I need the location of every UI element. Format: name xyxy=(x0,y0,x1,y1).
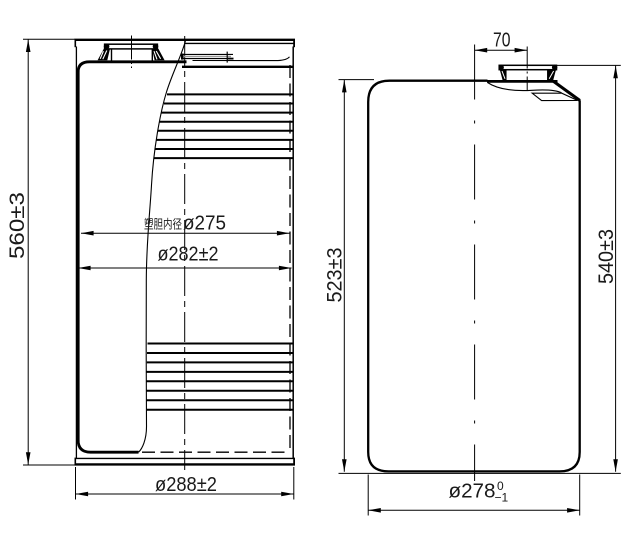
svg-text:塑胆内径: 塑胆内径 xyxy=(144,217,182,232)
svg-text:70: 70 xyxy=(493,29,511,52)
svg-text:ø278: ø278 xyxy=(449,480,496,503)
svg-text:ø275: ø275 xyxy=(183,212,226,235)
svg-text:ø288±2: ø288±2 xyxy=(155,473,217,496)
svg-text:560±3: 560±3 xyxy=(5,192,29,259)
svg-text:−1: −1 xyxy=(495,491,509,505)
svg-text:540±3: 540±3 xyxy=(594,229,618,284)
svg-text:523±3: 523±3 xyxy=(323,247,347,302)
svg-text:ø282±2: ø282±2 xyxy=(158,243,219,266)
